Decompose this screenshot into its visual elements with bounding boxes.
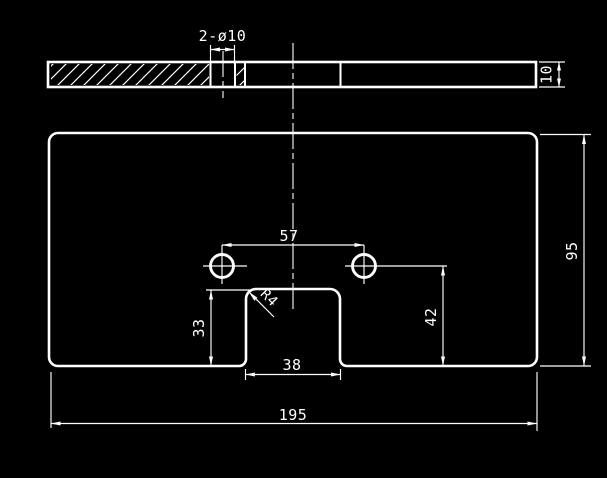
arrow-right: [528, 422, 538, 426]
arrow-right: [225, 48, 235, 52]
cad-drawing-canvas[interactable]: 2-ø10 10 57: [0, 0, 607, 478]
arrow-down: [441, 357, 445, 367]
hole-centerlines: [203, 245, 447, 284]
dim-plate-height: 95: [540, 135, 591, 367]
arrow-up: [209, 290, 213, 300]
dim-thickness: 10: [538, 62, 566, 87]
section-hatch-left: [51, 64, 209, 85]
section-hatch-right: [237, 64, 245, 85]
hole-spacing-label: 57: [279, 227, 298, 245]
arrow-left: [246, 373, 256, 377]
radius-callout: R4: [249, 286, 281, 317]
plate-width-label: 195: [279, 406, 308, 424]
front-view: 57 95 42 33: [49, 133, 591, 431]
plate-height-label: 95: [563, 241, 581, 260]
dim-hole-spacing: 57: [222, 227, 364, 247]
arrow-up: [557, 62, 561, 71]
arrow-down: [557, 79, 561, 88]
notch-width-label: 38: [282, 356, 301, 374]
dim-notch-width: 38: [246, 356, 341, 380]
dim-hole-height: 42: [422, 266, 445, 366]
arrow-right: [355, 243, 365, 247]
thickness-label: 10: [538, 65, 556, 84]
dim-notch-depth: 33: [190, 290, 250, 366]
section-hole-edges: [211, 62, 341, 87]
hole-height-label: 42: [422, 307, 440, 326]
arrow-left: [211, 48, 221, 52]
arrow-up: [441, 266, 445, 276]
notch-depth-label: 33: [190, 318, 208, 337]
arrow-left: [51, 422, 61, 426]
dim-plate-width: 195: [51, 372, 537, 431]
technical-drawing: 2-ø10 10 57: [0, 0, 607, 478]
arrow-right: [331, 373, 341, 377]
arrow-left: [222, 243, 232, 247]
section-view: 2-ø10 10: [48, 27, 565, 98]
hole-callout-label: 2-ø10: [199, 27, 247, 45]
arrow-down: [209, 357, 213, 367]
arrow-down: [582, 357, 586, 367]
arrow-up: [582, 135, 586, 145]
